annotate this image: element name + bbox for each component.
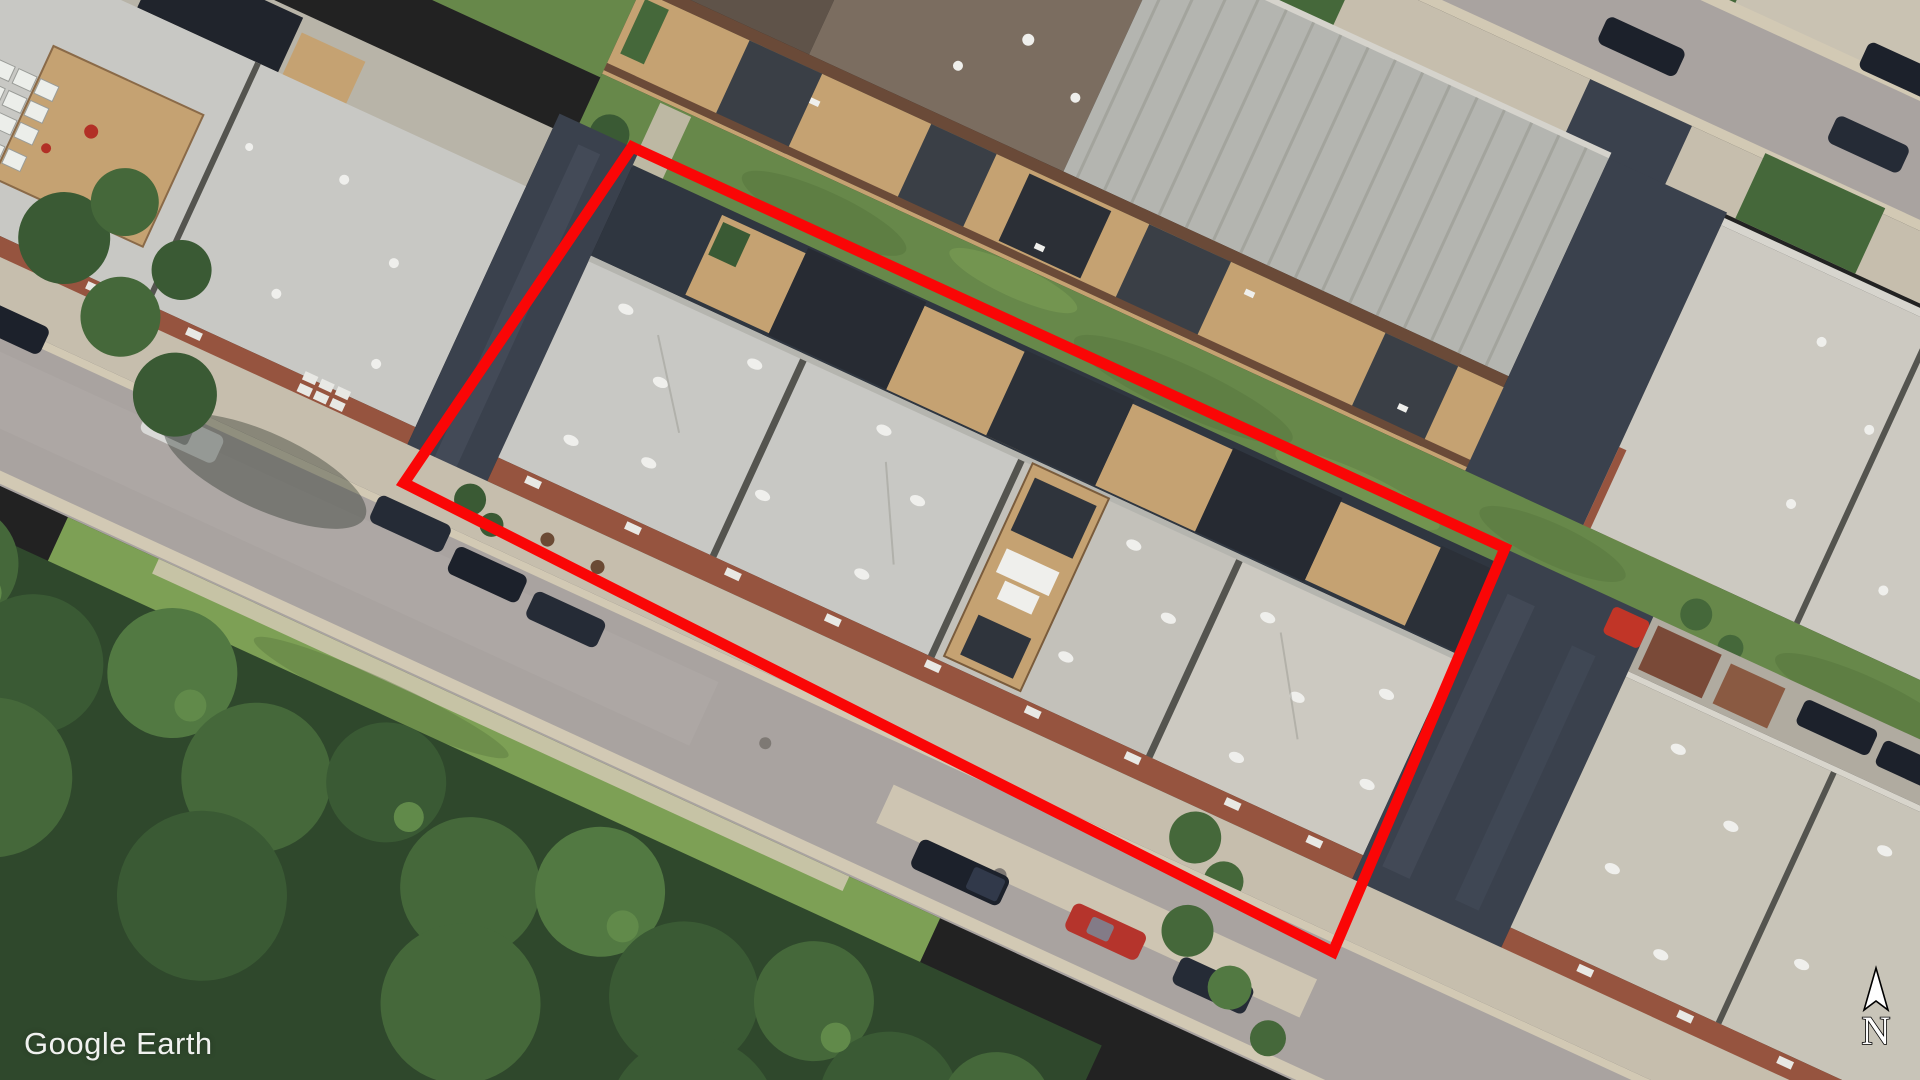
watermark: Google Earth [24,1026,213,1062]
aerial-imagery[interactable]: N [0,0,1920,1080]
google-earth-viewport: N Google Earth [0,0,1920,1080]
scene-rotated-layer [0,0,1920,1080]
north-label: N [1862,1008,1891,1053]
watermark-text: Google Earth [24,1026,213,1061]
